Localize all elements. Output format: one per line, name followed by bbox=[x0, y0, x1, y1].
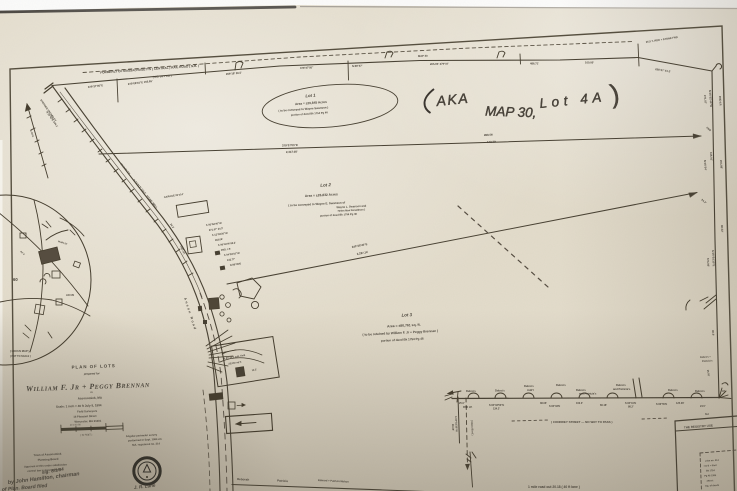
svg-text:( NOT TO SCALE ): ( NOT TO SCALE ) bbox=[10, 355, 31, 358]
svg-text:I.P.: I.P. bbox=[722, 390, 726, 393]
svg-text:1 mile road out 20.18 ( 40 f: 1 mile road out 20.18 ( 40 ft lane ) bbox=[528, 485, 580, 489]
svg-text:98.2': 98.2' bbox=[628, 406, 634, 409]
svg-text:96.02': 96.02' bbox=[720, 225, 724, 233]
svg-text:prepared for: prepared for bbox=[83, 371, 101, 376]
svg-text:66.06': 66.06' bbox=[451, 424, 454, 431]
svg-text:379°37'05"E: 379°37'05"E bbox=[282, 143, 298, 148]
svg-text:38.06': 38.06' bbox=[540, 402, 547, 405]
svg-text:Patricia: Patricia bbox=[277, 479, 288, 484]
svg-text:Debra's: Debra's bbox=[695, 389, 705, 393]
svg-text:Lot 1: Lot 1 bbox=[305, 93, 316, 99]
svg-text:60: 60 bbox=[13, 277, 18, 282]
svg-text:Debra's: Debra's bbox=[466, 389, 476, 393]
svg-text:Deborah: Deborah bbox=[237, 477, 250, 482]
svg-text:16 Pleasant Street: 16 Pleasant Street bbox=[73, 414, 96, 419]
svg-text:100.0': 100.0' bbox=[576, 402, 583, 405]
svg-text:and Patricia's: and Patricia's bbox=[579, 392, 597, 396]
svg-text:FND I.P.: FND I.P. bbox=[463, 406, 473, 409]
svg-text:attest:: attest: bbox=[706, 479, 713, 482]
svg-text:N 89°37': N 89°37' bbox=[352, 64, 363, 68]
svg-text:25.0': 25.0' bbox=[459, 402, 465, 405]
svg-text:N 05°54': N 05°54' bbox=[703, 160, 708, 171]
svg-text:40 0 40 8: 40 0 40 80 bbox=[70, 424, 82, 426]
svg-text:S 83°55'E: S 83°55'E bbox=[656, 403, 668, 406]
svg-text:Lot 2: Lot 2 bbox=[320, 182, 331, 188]
svg-text:125.06': 125.06' bbox=[676, 402, 685, 405]
svg-text:S 84°03'E: S 84°03'E bbox=[549, 405, 561, 408]
svg-text:Debra's +: Debra's + bbox=[700, 355, 711, 359]
svg-text:66.18': 66.18' bbox=[600, 404, 607, 407]
svg-text:Debra's: Debra's bbox=[616, 383, 626, 387]
svg-text:Bk 1754: Bk 1754 bbox=[706, 469, 716, 472]
svg-text:134.2': 134.2' bbox=[493, 408, 500, 411]
svg-text:( IN FEET ): ( IN FEET ) bbox=[80, 433, 92, 436]
svg-text:( LOCUS MAP ): ( LOCUS MAP ) bbox=[10, 349, 29, 353]
svg-text:Debra's: Debra's bbox=[576, 388, 586, 392]
svg-text:30.5': 30.5' bbox=[711, 330, 715, 336]
svg-text:Debra's: Debra's bbox=[556, 383, 566, 387]
svg-text:24.5': 24.5' bbox=[700, 405, 706, 408]
svg-text:and Patricia's: and Patricia's bbox=[613, 387, 631, 391]
svg-text:379°37'05": 379°37'05" bbox=[300, 65, 314, 70]
svg-text:486.71': 486.71' bbox=[530, 62, 539, 66]
svg-text:2,347.08': 2,347.08' bbox=[286, 150, 298, 154]
svg-text:Lot 3: Lot 3 bbox=[401, 312, 412, 318]
svg-text:288.56': 288.56' bbox=[484, 133, 494, 137]
svg-text:100.00': 100.00' bbox=[585, 61, 594, 65]
svg-text:Add'l: Add'l bbox=[527, 388, 534, 392]
svg-text:Field Surveyors: Field Surveyors bbox=[77, 409, 98, 414]
svg-text:LOCUS: LOCUS bbox=[66, 295, 75, 297]
svg-text:Debra's: Debra's bbox=[495, 389, 505, 393]
svg-text:172.30': 172.30' bbox=[487, 140, 497, 144]
svg-text:( CONDREY STREET — NO WAY: ( CONDREY STREET — NO WAY TO PASS ) bbox=[551, 420, 613, 424]
svg-text:573.06': 573.06' bbox=[706, 258, 710, 267]
svg-text:316.01': 316.01' bbox=[709, 152, 714, 161]
svg-text:271.07': 271.07' bbox=[703, 95, 708, 104]
svg-text:Debra's: Debra's bbox=[668, 388, 678, 392]
svg-text:204.88': 204.88' bbox=[719, 160, 724, 169]
svg-text:fnd: fnd bbox=[705, 413, 709, 416]
svg-text:Debra's: Debra's bbox=[524, 384, 534, 388]
svg-text:FND I.P.: FND I.P. bbox=[718, 96, 723, 106]
svg-text:Patricia's: Patricia's bbox=[702, 359, 713, 363]
svg-text:MAP 30: MAP 30 bbox=[418, 54, 428, 58]
svg-text:MAP 30,: MAP 30, bbox=[485, 104, 537, 121]
svg-text:205.96' 379°37': 205.96' 379°37' bbox=[430, 62, 449, 66]
